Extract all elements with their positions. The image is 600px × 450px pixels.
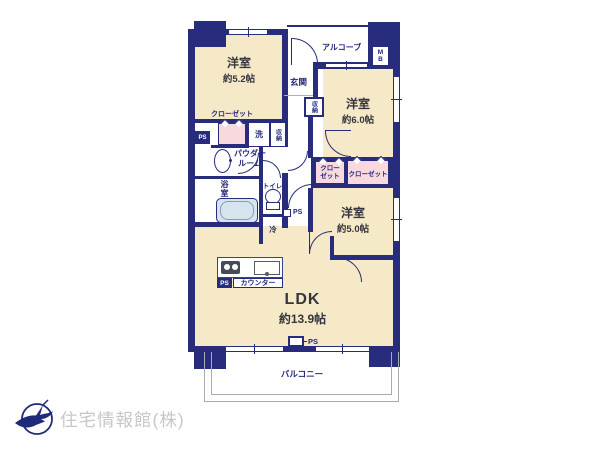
ps-leftwall-box: PS: [195, 131, 210, 144]
door-leaf: [309, 231, 310, 254]
west52-name: 洋室: [195, 54, 283, 71]
alcove-label: アルコーブ: [322, 42, 361, 53]
stove-burner: [232, 264, 238, 270]
west52-size: 約5.2帖: [195, 71, 283, 85]
window-tick: [248, 27, 249, 37]
wall-entrance-right: [313, 62, 318, 97]
stove-burner: [224, 264, 230, 270]
closet-mid-small-label: クローゼット: [320, 165, 341, 181]
closet-mid-large-box: クローゼット: [347, 160, 389, 185]
ps-kitchen-box: PS: [217, 278, 232, 288]
ps-bottom-box: [288, 336, 304, 347]
ps-corridor-box: [283, 209, 291, 217]
ps-leftwall-label: PS: [198, 135, 206, 141]
bathtub-inner: [220, 201, 254, 220]
window-tick: [346, 61, 347, 70]
sink-faucet: [265, 272, 269, 276]
company-logo-bird-icon: [14, 398, 58, 442]
company-name: 住宅情報館(株): [60, 407, 185, 432]
closet-west52-label: クローゼット: [211, 109, 253, 119]
laundry-label: 洗: [255, 129, 263, 140]
balcony-label: バルコニー: [212, 368, 392, 380]
storage-laundry-box: 収納: [270, 122, 286, 147]
ps-bottom-label: PS: [308, 337, 318, 346]
wall-powder-bath-div: [195, 176, 259, 179]
wall-corridor-right: [308, 117, 313, 158]
ps-corridor-label: PS: [293, 209, 302, 216]
counter-label-box: カウンター: [233, 278, 283, 288]
wall-left: [188, 29, 195, 352]
ldk-size: 約13.9帖: [240, 310, 365, 327]
ps-bottom-dash: [304, 341, 307, 342]
meter-box: MB: [373, 47, 388, 65]
storage-laundry-label: 収納: [274, 129, 283, 141]
entrance-step-line: [284, 95, 313, 96]
ldk-name: LDK: [240, 291, 365, 309]
toilet-tank: [266, 202, 280, 210]
ps-kitchen-label: PS: [220, 280, 229, 287]
meter-box-label: MB: [377, 49, 384, 63]
door-leaf: [291, 38, 292, 65]
toilet-label: トイレ: [261, 180, 284, 190]
west60-size: 約6.0帖: [323, 112, 393, 126]
closet-mid-large-label: クローゼット: [349, 168, 388, 178]
entrance-label: 玄関: [284, 76, 313, 88]
west50-size: 約5.0帖: [313, 221, 393, 235]
closet-west52-box: [218, 123, 246, 145]
wall-alcove-top: [287, 25, 368, 27]
storage-entrance-label: 収納: [310, 101, 319, 113]
door-arc-entrance: [292, 38, 318, 64]
closet-mid-small-box: クローゼット: [315, 161, 345, 184]
door-leaf: [325, 130, 351, 131]
wall-toilet-fridge-div: [259, 214, 286, 217]
counter-label: カウンター: [241, 278, 276, 288]
bath-label: 浴室: [219, 180, 230, 198]
floor-plan: クローゼット クローゼット MB 収納 洗 収納 PS カウンター: [0, 0, 600, 450]
powder-room-label: パウダールーム: [232, 149, 268, 168]
laundry-box: 洗: [248, 122, 270, 147]
west50-name: 洋室: [313, 204, 393, 221]
west60-name: 洋室: [323, 95, 393, 112]
wall-closet-row-bottom: [211, 145, 249, 148]
storage-entrance-box: 収納: [304, 97, 324, 117]
fridge-label: 冷: [262, 224, 284, 235]
